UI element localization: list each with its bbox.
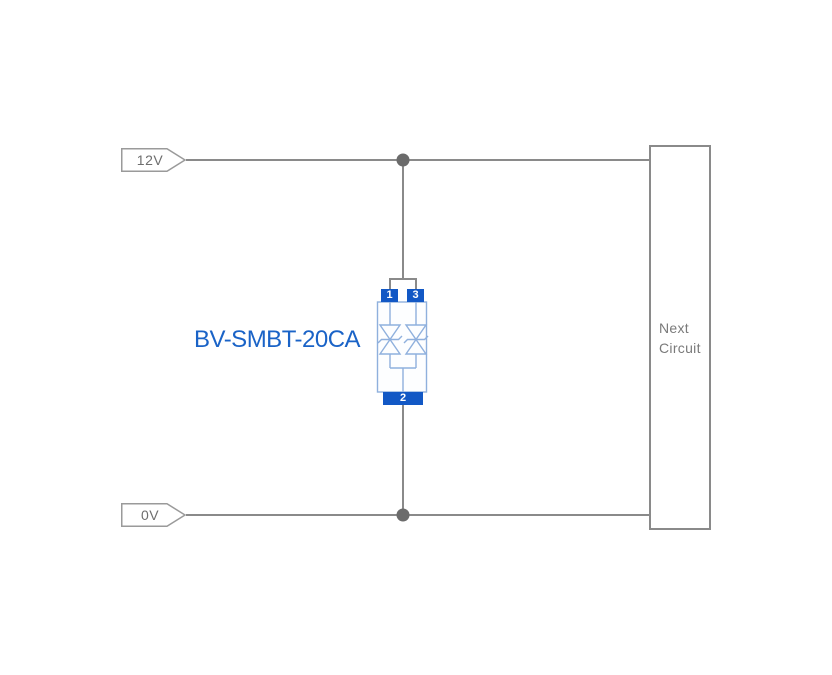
schematic-drawing bbox=[0, 0, 832, 675]
net-tag-0v: 0V bbox=[121, 503, 186, 527]
pin-pad-2: 2 bbox=[383, 392, 423, 405]
pin-pad-3: 3 bbox=[407, 289, 424, 302]
pin-number-3: 3 bbox=[412, 290, 418, 301]
net-tag-0v-label: 0V bbox=[121, 503, 179, 527]
pin-bracket bbox=[390, 279, 416, 289]
pin-pad-1: 1 bbox=[381, 289, 398, 302]
next-circuit-label: Next Circuit bbox=[659, 318, 707, 358]
pin-number-2: 2 bbox=[400, 393, 406, 404]
next-circuit-line2: Circuit bbox=[659, 338, 707, 358]
net-tag-12v: 12V bbox=[121, 148, 186, 172]
next-circuit-line1: Next bbox=[659, 318, 707, 338]
pin-number-1: 1 bbox=[386, 290, 392, 301]
junction-dot-bottom bbox=[397, 509, 410, 522]
schematic-canvas: 12V 0V 1 3 2 BV-SMBT-20CA Next Circuit bbox=[0, 0, 832, 675]
component-label: BV-SMBT-20CA bbox=[194, 326, 360, 354]
net-tag-12v-label: 12V bbox=[121, 148, 179, 172]
junction-dot-top bbox=[397, 154, 410, 167]
